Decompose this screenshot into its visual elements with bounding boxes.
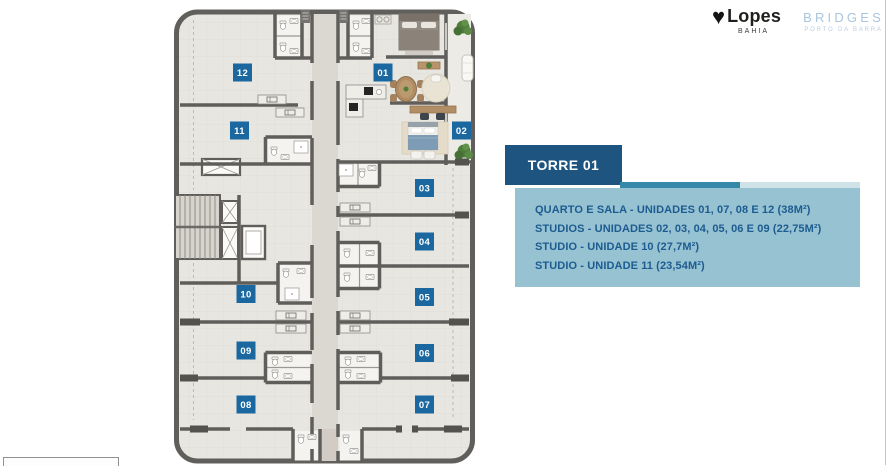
unit-badge-09: 09 [237,342,256,360]
lopes-logo-text: Lopes [727,6,781,27]
page-edge-line [885,0,886,465]
unit-badge-03: 03 [415,179,434,197]
unit-badge-01: 01 [374,64,393,82]
duct-shaft [202,159,240,175]
svg-text:04: 04 [419,237,431,248]
legend-line-studio-11: STUDIO - UNIDADE 11 (23,54M²) [535,257,860,276]
svg-text:03: 03 [419,184,430,195]
svg-text:08: 08 [240,400,251,411]
svg-text:09: 09 [240,346,251,357]
unit-legend: QUARTO E SALA - UNIDADES 01, 07, 08 E 12… [515,188,860,287]
corridor [312,14,338,460]
bridges-logo-text: BRIDGES [803,10,884,25]
svg-text:02: 02 [456,126,467,137]
bed [399,14,439,55]
legend-line-studio-10: STUDIO - UNIDADE 10 (27,7M²) [535,238,860,257]
svg-text:06: 06 [419,349,430,360]
unit-badge-10: 10 [237,285,256,303]
lopes-region-label: BAHIA [738,28,781,35]
unit-badge-12: 12 [233,64,252,82]
rug [422,74,450,102]
svg-text:01: 01 [377,68,389,79]
bridges-logo: BRIDGES PORTO DA BARRA [803,10,884,33]
svg-text:11: 11 [234,126,245,137]
legend-line-studios: STUDIOS - UNIDADES 02, 03, 04, 05, 06 E … [535,220,860,239]
legend-line-quarto-sala: QUARTO E SALA - UNIDADES 01, 07, 08 E 12… [535,201,860,220]
sideboard [418,62,440,69]
svg-text:07: 07 [419,400,430,411]
unit-badge-11: 11 [230,122,249,140]
svg-text:12: 12 [237,68,248,79]
balcony-lounger [462,55,473,81]
elevator-shaft [222,201,238,259]
washer-icon [375,15,391,24]
tower-title: TORRE 01 [505,145,622,185]
unit-badge-06: 06 [415,344,434,362]
unit-badge-07: 07 [415,396,434,414]
bed [402,122,448,159]
unit-badge-02: 02 [452,122,471,140]
elevator-cab [242,226,265,259]
brand-logos: ♥ Lopes BAHIA BRIDGES PORTO DA BARRA [712,6,884,35]
floor-plan: 12 01 11 02 03 04 10 05 09 06 08 07 [172,5,477,465]
unit-badge-05: 05 [415,288,434,306]
unit-badge-04: 04 [415,233,434,251]
svg-text:05: 05 [419,293,431,304]
unit-badge-08: 08 [237,396,256,414]
stairs [175,195,220,259]
bottom-lobby [320,429,338,461]
lopes-logo: ♥ Lopes BAHIA [712,6,781,35]
balcony-floor [447,14,471,164]
bridges-subtitle: PORTO DA BARRA [804,27,882,33]
heart-icon: ♥ [712,8,725,26]
svg-text:10: 10 [240,290,251,301]
